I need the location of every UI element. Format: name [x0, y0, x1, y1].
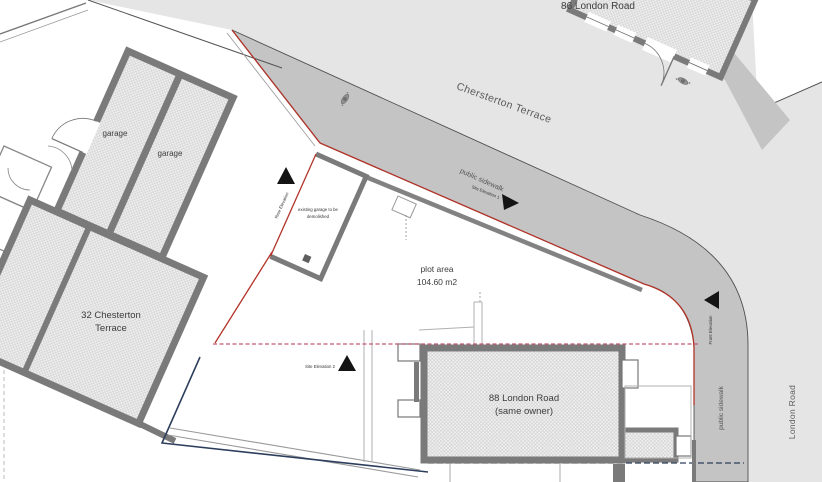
- garage-west-label: garage: [103, 129, 128, 138]
- building-86-label: 86 London Road: [561, 1, 635, 12]
- entry-wall: [414, 362, 419, 402]
- demolish-label-line1: existing garage to be: [298, 207, 339, 212]
- bay-window-icon: [622, 360, 638, 388]
- bay-window-icon: [398, 400, 420, 417]
- bay-window-icon: [398, 344, 420, 361]
- plot-area-label: plot area: [420, 264, 453, 274]
- building-88-label: 88 London Road: [489, 393, 559, 404]
- bay-window-icon: [676, 436, 691, 456]
- sidewalk-london-label: public sidewalk: [718, 385, 725, 429]
- wall-stub: [613, 464, 625, 482]
- garage-east-label: garage: [158, 149, 183, 158]
- building-88-footprint: [424, 348, 622, 460]
- elevation-marker-label: Front Elevation: [708, 315, 713, 345]
- building-32-label-line2: Terrace: [95, 323, 127, 334]
- building-88-extension: [622, 430, 676, 460]
- elevation-marker-label: Site Elevation 2: [305, 364, 335, 369]
- street-london-label: London Road: [787, 385, 797, 439]
- site-plan: 86 London Road garage garage 32 Chestert…: [0, 0, 822, 482]
- building-88-note: (same owner): [495, 406, 553, 417]
- plot-area-value: 104.60 m2: [417, 277, 457, 287]
- building-32-label-line1: 32 Chesterton: [81, 310, 141, 321]
- demolish-label-line2: demolished: [307, 214, 330, 219]
